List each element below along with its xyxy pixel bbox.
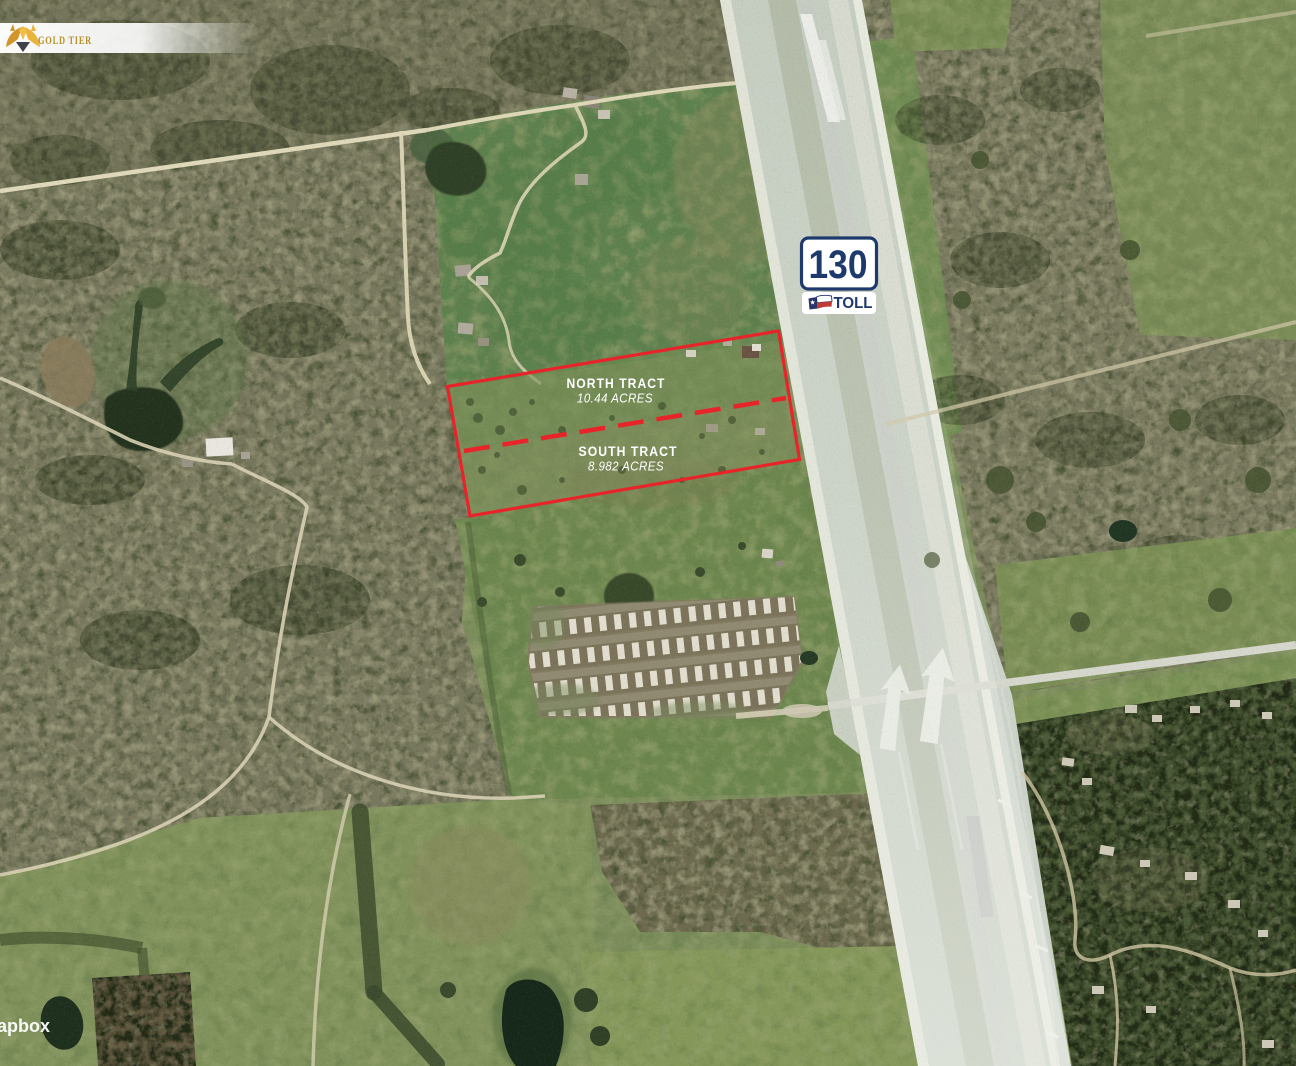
svg-text:TOLL: TOLL <box>834 295 873 312</box>
svg-text:8.982 ACRES: 8.982 ACRES <box>588 459 664 474</box>
svg-text:10.44 ACRES: 10.44 ACRES <box>577 391 653 406</box>
svg-text:130: 130 <box>809 243 868 287</box>
svg-text:apbox: apbox <box>0 1016 50 1036</box>
svg-text:SOUTH TRACT: SOUTH TRACT <box>579 443 678 459</box>
svg-text:GOLD TIER: GOLD TIER <box>38 35 92 47</box>
svg-text:NORTH TRACT: NORTH TRACT <box>567 375 666 391</box>
